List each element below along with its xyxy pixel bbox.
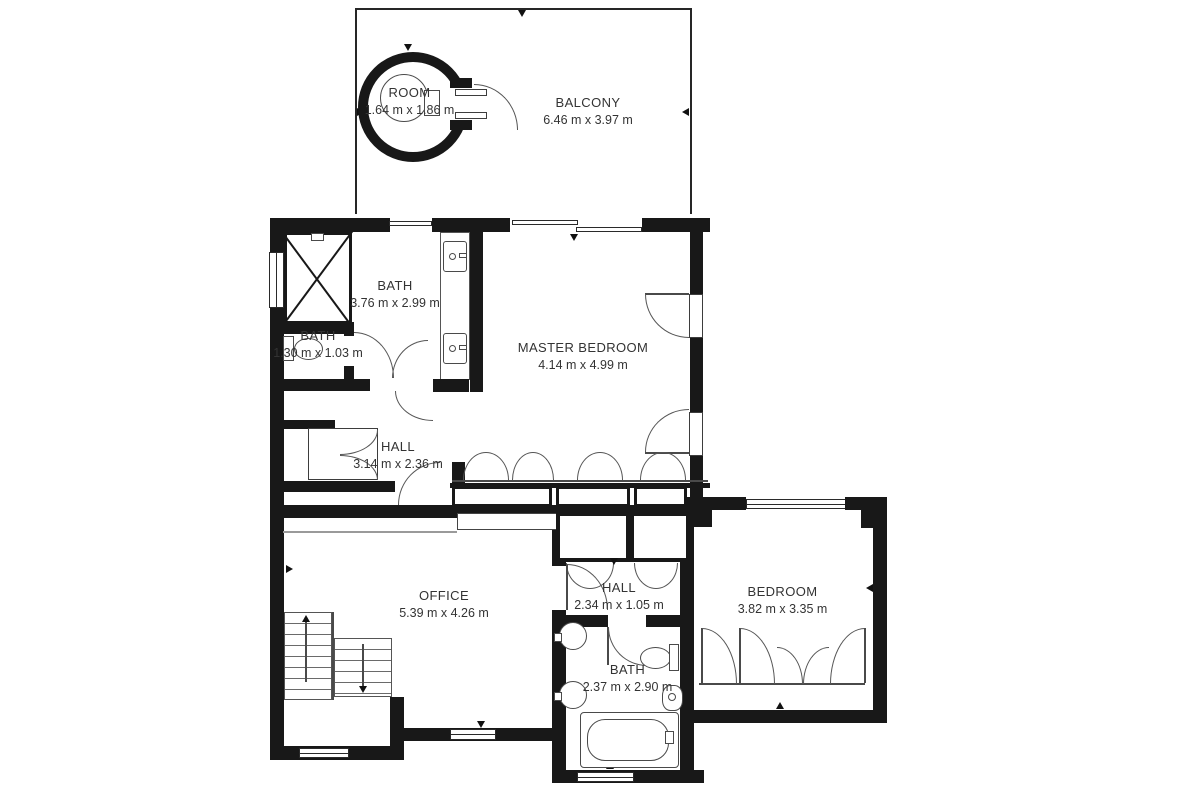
window bbox=[746, 499, 846, 509]
pass-through bbox=[457, 513, 557, 530]
room-dims: 5.39 m x 4.26 m bbox=[369, 606, 519, 620]
stair-down-arrow bbox=[359, 686, 367, 693]
bifold-door bbox=[512, 452, 533, 480]
room-name: HALL bbox=[338, 440, 458, 455]
wall-tick bbox=[477, 721, 485, 728]
room-label-master-bedroom: MASTER BEDROOM 4.14 m x 4.99 m bbox=[498, 341, 668, 372]
room-name: BATH bbox=[258, 329, 378, 344]
room-label-bath-main: BATH 3.76 m x 2.99 m bbox=[330, 279, 460, 310]
stair-up-arrow bbox=[302, 615, 310, 622]
faucet-icon bbox=[554, 633, 562, 642]
door-jamb bbox=[689, 294, 703, 338]
wall-tick bbox=[610, 558, 618, 565]
bifold-door bbox=[486, 452, 509, 480]
wall-tick bbox=[866, 584, 873, 592]
bifold-door bbox=[463, 452, 486, 480]
room-dims: 2.34 m x 1.05 m bbox=[559, 598, 679, 612]
room-label-balcony: BALCONY 6.46 m x 3.97 m bbox=[500, 96, 676, 127]
wall-segment bbox=[690, 218, 703, 294]
door-arc bbox=[740, 628, 775, 684]
wall-segment bbox=[687, 710, 887, 723]
door-threshold bbox=[450, 729, 496, 740]
room-label-bath-lower: BATH 2.37 m x 2.90 m bbox=[560, 663, 695, 694]
room-label-hall-lower: HALL 2.34 m x 1.05 m bbox=[559, 581, 679, 612]
wall-segment bbox=[270, 218, 390, 232]
wall-segment bbox=[873, 503, 887, 723]
stair-direction-line bbox=[362, 644, 364, 688]
room-dims: 3.82 m x 3.35 m bbox=[700, 602, 865, 616]
wall-tick bbox=[570, 234, 578, 241]
room-dims: 3.76 m x 2.99 m bbox=[330, 296, 460, 310]
wall-tick bbox=[404, 44, 412, 51]
room-label-office: OFFICE 5.39 m x 4.26 m bbox=[369, 589, 519, 620]
bifold-door bbox=[663, 452, 686, 480]
window bbox=[269, 252, 284, 308]
window bbox=[577, 772, 634, 782]
faucet-icon bbox=[665, 731, 674, 744]
room-label-turret: ROOM 1.64 m x 1.86 m bbox=[352, 86, 467, 117]
room-name: BATH bbox=[330, 279, 460, 294]
sliding-door-panel bbox=[389, 221, 432, 226]
wall-segment bbox=[283, 481, 395, 492]
bifold-door bbox=[600, 452, 623, 480]
closet-box bbox=[634, 486, 687, 507]
door-arc bbox=[702, 628, 737, 684]
staircase-divider bbox=[332, 612, 334, 700]
closet-sill bbox=[452, 480, 708, 482]
room-dims: 3.14 m x 2.36 m bbox=[338, 457, 458, 471]
door-arc bbox=[645, 409, 689, 452]
window bbox=[299, 748, 349, 758]
wall-segment bbox=[690, 338, 703, 412]
faucet-icon bbox=[459, 253, 467, 258]
room-name: BALCONY bbox=[500, 96, 676, 111]
room-name: OFFICE bbox=[369, 589, 519, 604]
wall-tick bbox=[682, 108, 689, 116]
wall-segment bbox=[433, 379, 469, 392]
wall-segment bbox=[646, 615, 694, 627]
staircase-flight bbox=[284, 612, 332, 700]
sink bbox=[559, 622, 587, 650]
bathtub-basin bbox=[587, 719, 669, 761]
door-arc bbox=[830, 628, 865, 684]
sink-drain-icon bbox=[449, 253, 456, 260]
room-label-bath-small: BATH 1.30 m x 1.03 m bbox=[258, 329, 378, 360]
door-arc bbox=[395, 391, 433, 421]
room-name: MASTER BEDROOM bbox=[498, 341, 668, 356]
bifold-door bbox=[640, 452, 663, 480]
bifold-door bbox=[533, 452, 554, 480]
door-leaf bbox=[864, 628, 866, 683]
wall-segment bbox=[432, 218, 510, 232]
bifold-door bbox=[777, 647, 803, 684]
room-name: HALL bbox=[559, 581, 679, 596]
wall-segment bbox=[344, 366, 354, 379]
faucet-icon bbox=[459, 345, 467, 350]
room-dims: 6.46 m x 3.97 m bbox=[500, 113, 676, 127]
door-arc bbox=[392, 340, 428, 378]
shower-head-icon bbox=[311, 233, 324, 241]
wall-segment bbox=[690, 456, 703, 507]
room-dims: 4.14 m x 4.99 m bbox=[498, 358, 668, 372]
door-arc bbox=[645, 294, 689, 338]
room-label-bedroom: BEDROOM 3.82 m x 3.35 m bbox=[700, 585, 865, 616]
wall-tick bbox=[286, 565, 293, 573]
sink-drain-icon bbox=[449, 345, 456, 352]
stair-direction-line bbox=[305, 622, 307, 682]
room-name: BATH bbox=[560, 663, 695, 678]
wall-segment bbox=[270, 218, 284, 252]
room-label-hall-upper: HALL 3.14 m x 2.36 m bbox=[338, 440, 458, 471]
room-name: ROOM bbox=[352, 86, 467, 101]
wall-segment bbox=[270, 308, 284, 746]
sliding-door-panel bbox=[576, 227, 642, 232]
wall-segment bbox=[470, 232, 483, 392]
room-dims: 1.30 m x 1.03 m bbox=[258, 346, 378, 360]
floor-plan-canvas: ROOM 1.64 m x 1.86 m BALCONY 6.46 m x 3.… bbox=[0, 0, 1200, 803]
room-name: BEDROOM bbox=[700, 585, 865, 600]
room-dims: 1.64 m x 1.86 m bbox=[352, 103, 467, 117]
closet-box bbox=[630, 512, 690, 562]
wall-tick bbox=[776, 702, 784, 709]
room-boundary-line bbox=[283, 531, 457, 533]
room-dims: 2.37 m x 2.90 m bbox=[560, 680, 695, 694]
closet-box bbox=[556, 486, 630, 507]
door-post bbox=[450, 120, 472, 130]
bifold-door bbox=[803, 647, 829, 684]
door-jamb bbox=[689, 412, 703, 456]
sliding-door-panel bbox=[512, 220, 578, 225]
wall-tick bbox=[518, 10, 526, 17]
closet-box bbox=[452, 486, 552, 507]
wall-segment bbox=[270, 379, 370, 391]
closet-box bbox=[556, 512, 630, 562]
bifold-door bbox=[577, 452, 600, 480]
